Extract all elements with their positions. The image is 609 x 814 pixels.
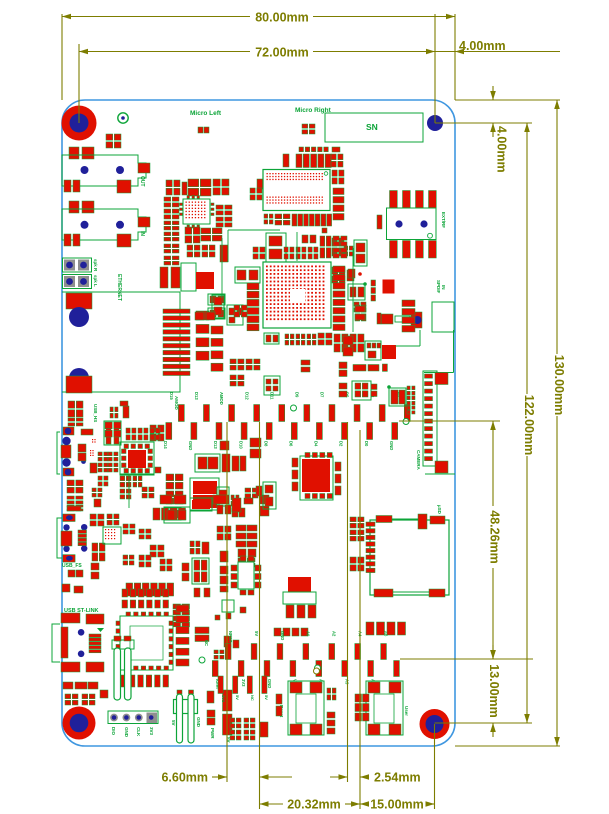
svg-text:D6: D6 [289, 441, 294, 447]
svg-text:spk L: spk L [93, 275, 98, 287]
svg-text:6.60mm: 6.60mm [161, 771, 208, 785]
svg-text:72.00mm: 72.00mm [255, 46, 309, 60]
svg-text:D10: D10 [238, 441, 243, 449]
svg-text:GND: GND [389, 441, 394, 450]
svg-text:D15: D15 [169, 392, 174, 400]
svg-text:USB_HS: USB_HS [93, 404, 98, 422]
svg-text:5V: 5V [171, 720, 176, 726]
svg-text:D13: D13 [213, 441, 218, 449]
svg-text:NRST: NRST [228, 631, 233, 643]
svg-text:D11: D11 [269, 392, 274, 400]
svg-text:GND: GND [267, 679, 272, 688]
svg-text:spk R: spk R [93, 259, 98, 272]
svg-text:5V: 5V [235, 695, 240, 700]
svg-text:5V: 5V [254, 631, 259, 636]
svg-text:GND: GND [188, 441, 193, 450]
svg-text:GND: GND [280, 631, 285, 640]
svg-text:13.00mm: 13.00mm [487, 664, 501, 718]
svg-text:5V: 5V [264, 695, 269, 700]
svg-text:ETHERNET: ETHERNET [116, 274, 122, 301]
svg-text:IN: IN [139, 231, 145, 236]
svg-text:A2: A2 [332, 631, 337, 637]
svg-text:NC: NC [204, 640, 209, 646]
svg-text:D7: D7 [320, 392, 325, 398]
svg-text:User: User [404, 706, 409, 716]
svg-text:DIO: DIO [111, 727, 116, 736]
svg-text:Micro Left: Micro Left [190, 110, 222, 117]
svg-text:PWR: PWR [210, 728, 215, 739]
svg-text:48.26mm: 48.26mm [488, 510, 502, 564]
svg-text:CLK: CLK [136, 727, 141, 737]
svg-text:IN: IN [441, 285, 446, 290]
svg-text:3V3: 3V3 [149, 727, 154, 736]
svg-text:D13: D13 [194, 392, 199, 400]
svg-text:4.00mm: 4.00mm [459, 39, 506, 53]
svg-text:3V3: 3V3 [241, 679, 246, 687]
svg-text:122.00mm: 122.00mm [522, 395, 536, 455]
svg-text:20.32mm: 20.32mm [287, 798, 341, 812]
svg-text:A0: A0 [306, 631, 311, 637]
svg-text:D4: D4 [314, 441, 319, 447]
svg-text:D8: D8 [263, 441, 268, 447]
svg-text:D0: D0 [364, 441, 369, 447]
svg-text:NC: NC [250, 695, 255, 701]
svg-text:15.00mm: 15.00mm [370, 798, 424, 812]
svg-text:D14: D14 [163, 441, 168, 449]
svg-text:D9: D9 [295, 392, 300, 398]
svg-text:AMOD: AMOD [174, 396, 179, 410]
svg-text:OUT: OUT [139, 176, 145, 187]
svg-text:D2: D2 [339, 441, 344, 447]
svg-text:4.00mm: 4.00mm [495, 126, 509, 173]
svg-text:SPDIF: SPDIF [436, 280, 441, 294]
svg-text:GND: GND [124, 727, 129, 738]
svg-text:USB_FS: USB_FS [62, 563, 82, 569]
svg-text:GND: GND [196, 717, 201, 728]
svg-text:D12: D12 [244, 392, 249, 400]
svg-text:µSD: µSD [437, 505, 442, 515]
svg-text:EXT/RF: EXT/RF [441, 212, 446, 228]
svg-text:2.54mm: 2.54mm [374, 771, 421, 785]
svg-text:130.00mm: 130.00mm [552, 355, 566, 415]
svg-text:CAMERA: CAMERA [416, 450, 421, 470]
svg-text:80.00mm: 80.00mm [255, 11, 309, 25]
svg-text:3V3: 3V3 [221, 695, 226, 703]
svg-text:AMOD: AMOD [219, 392, 224, 405]
svg-text:SN: SN [366, 122, 378, 132]
